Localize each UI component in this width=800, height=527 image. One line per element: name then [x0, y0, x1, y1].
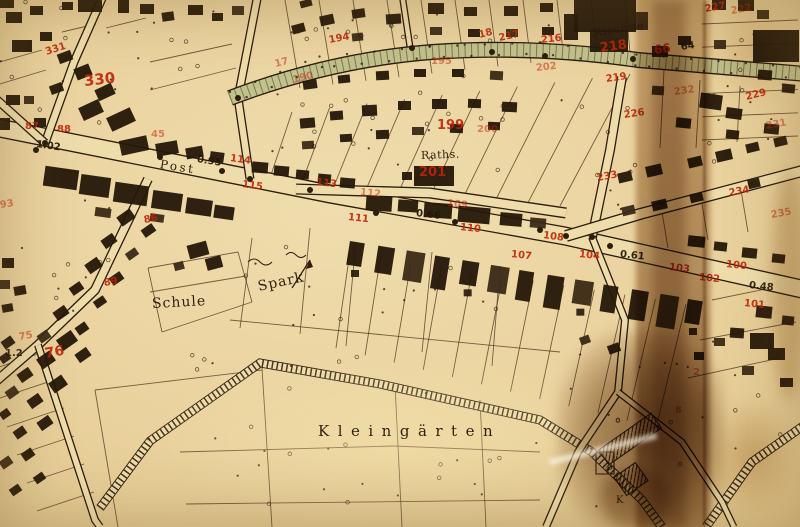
parcel-number-66: 66: [653, 42, 671, 56]
parcel-number-104: 104: [578, 250, 600, 262]
parcel-number-234: 234: [728, 185, 750, 198]
place-label-kleingärten: Kleingärten: [318, 424, 501, 439]
map-labels: PostRaths.SparkSchuleKleingärtenKirchneP…: [0, 0, 800, 527]
parcel-number-227: 227: [704, 1, 726, 14]
parcel-number-201: 201: [419, 166, 446, 179]
distance-label-1.2: 1.2: [5, 349, 23, 359]
parcel-number-217: 217: [498, 30, 520, 44]
parcel-number-229: 229: [745, 88, 768, 103]
parcel-number-235: 235: [770, 207, 792, 220]
parcel-number-103: 103: [668, 263, 690, 275]
place-label-raths-: Raths.: [421, 149, 460, 161]
parcel-number-17: 17: [274, 57, 290, 70]
parcel-number-108: 108: [542, 231, 564, 244]
parcel-number-194: 194: [328, 32, 350, 45]
parcel-number-190: 190: [292, 71, 315, 86]
place-label-p: P: [606, 466, 613, 476]
parcel-number-202: 202: [535, 62, 557, 74]
place-label-kirchne: Kirchne: [593, 20, 645, 38]
place-label-spark: Spark: [257, 270, 306, 293]
parcel-number-331: 331: [44, 42, 67, 58]
place-label-schule: Schule: [152, 294, 207, 311]
parcel-number-109: 109: [446, 199, 468, 211]
parcel-number-2: 2: [693, 368, 700, 378]
parcel-number-199: 199: [437, 119, 464, 132]
parcel-number-88: 88: [57, 125, 71, 135]
parcel-number-75: 75: [18, 331, 33, 343]
parcel-number-102: 102: [698, 273, 720, 285]
parcel-number-93: 93: [0, 199, 14, 211]
distance-label-0.66: 0.66: [415, 209, 441, 222]
parcel-number-226: 226: [623, 108, 645, 121]
distance-label-0.48: 0.48: [748, 281, 774, 294]
parcel-number-218: 218: [599, 38, 628, 55]
parcel-number-86: 86: [143, 214, 158, 226]
parcel-number-76: 76: [44, 344, 66, 361]
parcel-number-18: 18: [478, 28, 494, 41]
parcel-number-107: 107: [510, 250, 532, 262]
parcel-number-111: 111: [347, 213, 369, 225]
parcel-number-219: 219: [605, 72, 627, 85]
distance-label-1.02: 1.02: [35, 140, 61, 153]
parcel-number-113: 113: [315, 178, 337, 190]
place-label-k: K: [616, 496, 623, 506]
parcel-number-110: 110: [459, 223, 481, 235]
parcel-number-45: 45: [151, 130, 165, 140]
distance-label-64: 64: [680, 41, 695, 53]
parcel-number-231: 231: [765, 118, 787, 131]
parcel-number-200: 200: [477, 125, 498, 135]
parcel-number-8: 8: [675, 406, 682, 416]
place-label-post: Post: [159, 158, 196, 175]
parcel-number-233: 233: [596, 170, 618, 183]
distance-label-0.61: 0.61: [619, 250, 645, 263]
parcel-number-89: 89: [103, 277, 118, 289]
parcel-number-232: 232: [673, 85, 695, 98]
historical-map[interactable]: PostRaths.SparkSchuleKleingärtenKirchneP…: [0, 0, 800, 527]
parcel-number-222: 222: [730, 3, 752, 16]
parcel-number-101: 101: [743, 299, 765, 311]
parcel-number-100: 100: [725, 260, 747, 272]
parcel-number-87: 87: [25, 122, 39, 132]
distance-label-0.95: 0.95: [196, 155, 222, 169]
parcel-number-330: 330: [83, 71, 116, 89]
parcel-number-114: 114: [229, 154, 251, 167]
parcel-number-216: 216: [540, 34, 562, 46]
parcel-number-112: 112: [359, 188, 381, 200]
parcel-number-115: 115: [241, 180, 263, 193]
parcel-number-195: 195: [431, 57, 452, 67]
